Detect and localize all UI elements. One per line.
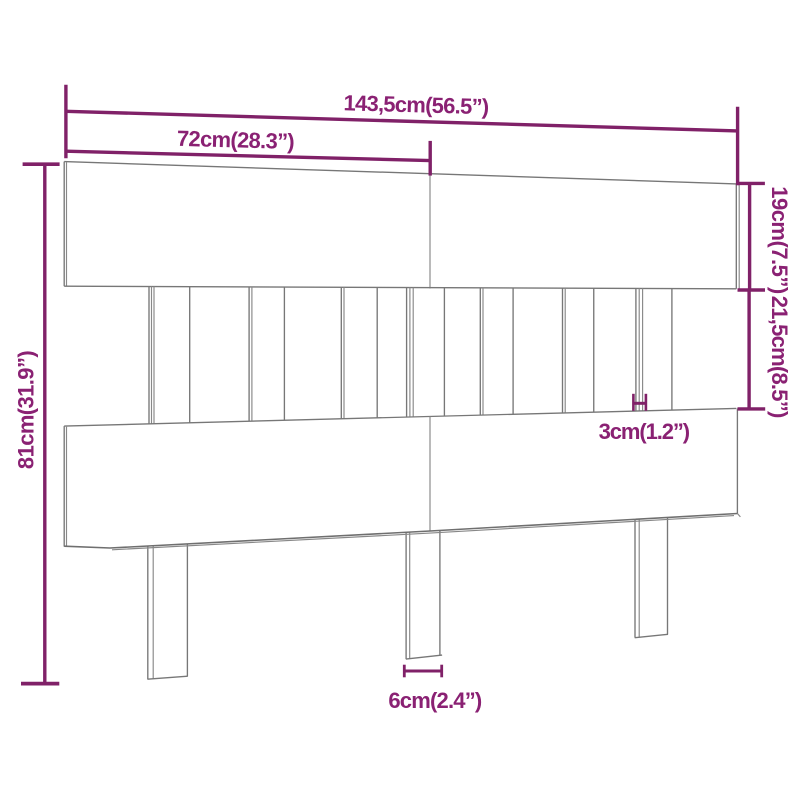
svg-text:72cm(28.3”): 72cm(28.3”) [177,126,295,154]
svg-text:19cm(7.5”): 19cm(7.5”) [767,186,792,294]
svg-text:6cm(2.4”): 6cm(2.4”) [388,688,482,713]
svg-text:143,5cm(56.5”): 143,5cm(56.5”) [343,90,489,119]
svg-text:81cm(31.9”): 81cm(31.9”) [14,351,39,469]
svg-text:3cm(1.2”): 3cm(1.2”) [599,419,690,444]
svg-text:21,5cm(8.5”): 21,5cm(8.5”) [767,296,792,418]
